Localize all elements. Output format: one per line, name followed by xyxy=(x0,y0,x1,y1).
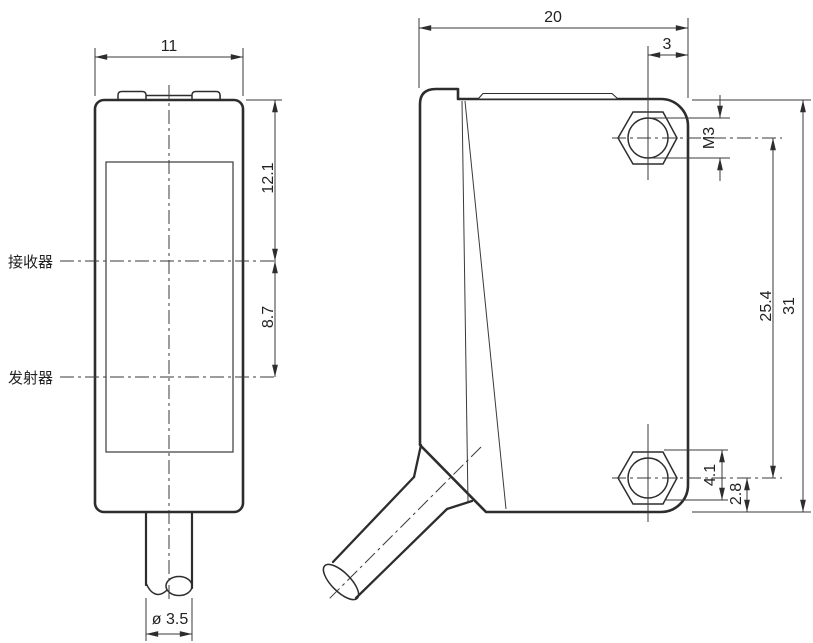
emitter-label: 发射器 xyxy=(8,370,53,387)
dimension-upper-section: 12.1 xyxy=(246,100,282,261)
dimension-hole-offset: 3 xyxy=(648,36,688,55)
dim-label-upper-section: 12.1 xyxy=(260,162,277,193)
dim-label-depth: 20 xyxy=(544,9,562,26)
receiver-label: 接收器 xyxy=(8,254,53,271)
dim-label-lower-section: 8.7 xyxy=(260,306,277,328)
dim-label-height: 31 xyxy=(781,297,798,315)
dimension-hole-spacing: 25.4 xyxy=(758,138,775,478)
dimension-lower-section: 8.7 xyxy=(260,261,277,377)
sensor-dimension-drawing: 11 12.1 8.7 ø 3.5 接收器 发射器 xyxy=(0,0,813,643)
front-view: 11 12.1 8.7 ø 3.5 接收器 发射器 xyxy=(8,38,282,641)
dim-label-thread: M3 xyxy=(701,127,718,149)
dim-label-bottom-offset: 2.8 xyxy=(728,483,745,505)
technical-drawing-page: 11 12.1 8.7 ø 3.5 接收器 发射器 xyxy=(0,0,813,643)
dim-label-hole-offset: 3 xyxy=(663,36,672,53)
cable-cut-end-side xyxy=(318,559,364,605)
cable-centerline xyxy=(329,447,481,599)
top-label-strip xyxy=(478,94,618,100)
dim-label-width: 11 xyxy=(161,38,178,55)
dimension-cable-diameter: ø 3.5 xyxy=(146,598,192,641)
dim-label-cable-diameter: ø 3.5 xyxy=(152,611,189,628)
dim-label-hex-recess: 4.1 xyxy=(702,464,719,486)
dim-label-hole-spacing: 25.4 xyxy=(758,290,775,321)
side-view: 20 3 M3 25.4 31 xyxy=(318,9,811,605)
dimension-bottom-offset: 2.8 xyxy=(728,478,747,512)
cable-cut-end xyxy=(146,583,167,594)
